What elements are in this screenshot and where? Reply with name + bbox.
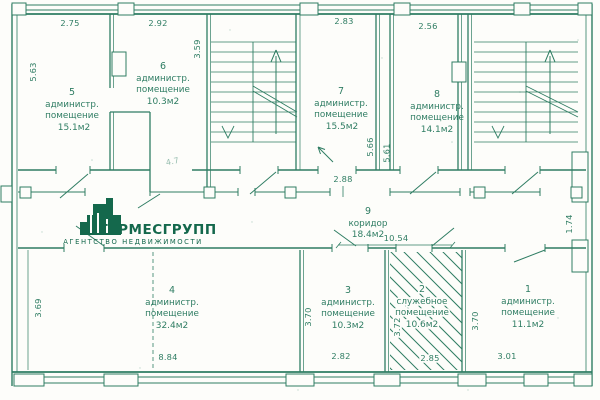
dim-corridor-right: 1.74 <box>564 214 574 233</box>
room-8-area: 14.1м2 <box>421 125 454 135</box>
room-6-name: администр. <box>136 74 190 84</box>
floor-plan-scan: 2.75 2.92 2.83 2.56 5.63 3.59 5.66 5.61 … <box>0 0 600 400</box>
dim-room6-right: 3.59 <box>192 39 202 58</box>
entrance-arrow-icon <box>318 147 333 162</box>
staircase-right-icon <box>474 42 578 142</box>
dim-room5-left: 5.63 <box>28 62 38 81</box>
dim-room8-left: 5.61 <box>382 143 392 162</box>
room-1-label: 1 администр. помещение 11.1м2 <box>501 284 555 330</box>
room-3-number: 3 <box>345 285 351 296</box>
room-4-number: 4 <box>169 285 175 296</box>
dim-corridor-width: 2.88 <box>333 174 352 184</box>
dim-room3-bottom: 2.82 <box>331 351 350 361</box>
room-6-number: 6 <box>160 61 166 72</box>
duct-room8 <box>452 62 466 82</box>
room-1-area: 11.1м2 <box>512 320 545 330</box>
dim-room2-left: 3.72 <box>392 317 402 336</box>
dim-room2-bottom: 2.85 <box>420 353 439 363</box>
room-3-name: администр. <box>321 298 375 308</box>
room-6-area: 10.3м2 <box>147 97 180 107</box>
room-8-number: 8 <box>434 89 440 100</box>
dim-room7-right: 5.66 <box>365 137 375 156</box>
staircase-left-icon <box>211 42 297 142</box>
room-2-name2: помещение <box>395 308 449 318</box>
room-2-name: служебное <box>397 297 448 307</box>
dim-room3-left: 3.70 <box>303 307 313 326</box>
room-4-area: 32.4м2 <box>156 321 189 331</box>
room-8-name2: помещение <box>410 113 464 123</box>
logo-title: ГЕРМЕСГРУПП <box>99 222 216 238</box>
dim-room4-left: 3.69 <box>33 298 43 317</box>
room-5-label: 5 администр. помещение 15.1м2 <box>45 87 99 133</box>
room-7-name2: помещение <box>314 110 368 120</box>
dim-room6-top: 2.92 <box>148 18 167 28</box>
floor-plan: 2.75 2.92 2.83 2.56 5.63 3.59 5.66 5.61 … <box>0 0 600 400</box>
room-9-area: 18.4м2 <box>352 230 385 240</box>
logo-subtitle: АГЕНТСТВО НЕДВИЖИМОСТИ <box>63 238 203 246</box>
room-1-name: администр. <box>501 297 555 307</box>
room-6-label: 6 администр. помещение 10.3м2 <box>136 61 190 107</box>
room-5-name: администр. <box>45 100 99 110</box>
room-7-area: 15.5м2 <box>326 122 359 132</box>
room-2-number: 2 <box>419 284 425 295</box>
bottom-wall-piers <box>14 374 592 386</box>
dim-room4-bottom: 8.84 <box>158 352 177 362</box>
room-9-name: коридор <box>348 219 387 229</box>
room-9-number: 9 <box>365 206 371 217</box>
room-4-name: администр. <box>145 298 199 308</box>
room-5-area: 15.1м2 <box>58 123 91 133</box>
room-8-name: администр. <box>410 102 464 112</box>
dim-room7-top: 2.83 <box>334 16 353 26</box>
scan-noise <box>41 29 579 390</box>
dim-hall-area: 4.7 <box>165 156 180 168</box>
room-2-label: 2 служебное помещение 10.6м2 <box>395 284 449 330</box>
room-3-label: 3 администр. помещение 10.3м2 <box>321 285 375 331</box>
dim-room5-top: 2.75 <box>60 18 79 28</box>
dim-corridor-length: 10.54 <box>384 233 409 243</box>
room-1-number: 1 <box>525 284 531 295</box>
room-5-number: 5 <box>69 87 75 98</box>
dim-room1-bottom: 3.01 <box>497 351 516 361</box>
dim-room1-left: 3.70 <box>470 311 480 330</box>
room-9-label: 9 коридор 18.4м2 <box>348 206 387 240</box>
room-8-label: 8 администр. помещение 14.1м2 <box>410 89 464 135</box>
room-7-number: 7 <box>338 86 344 97</box>
room-3-name2: помещение <box>321 309 375 319</box>
interior-walls <box>18 14 586 372</box>
right-wall-pilaster-lower <box>572 240 588 272</box>
room-4-name2: помещение <box>145 309 199 319</box>
room-5-name2: помещение <box>45 111 99 121</box>
duct-room6 <box>112 52 126 76</box>
room-7-label: 7 администр. помещение 15.5м2 <box>314 86 368 132</box>
logo: ГЕРМЕСГРУПП АГЕНТСТВО НЕДВИЖИМОСТИ <box>63 198 216 246</box>
room-3-area: 10.3м2 <box>332 321 365 331</box>
dim-room8-top: 2.56 <box>418 21 437 31</box>
left-wall-window <box>1 186 12 202</box>
room-1-name2: помещение <box>501 308 555 318</box>
room-7-name: администр. <box>314 99 368 109</box>
room-6-name2: помещение <box>136 85 190 95</box>
room-2-area: 10.6м2 <box>406 320 439 330</box>
